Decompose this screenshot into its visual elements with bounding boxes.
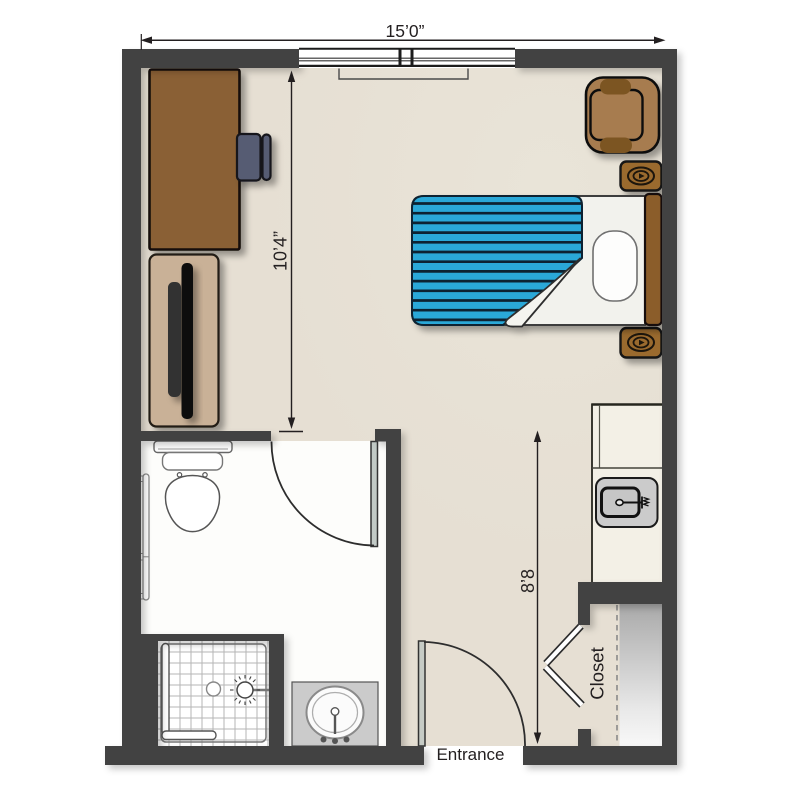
svg-text:8’8: 8’8 xyxy=(518,569,538,593)
svg-text:15’0”: 15’0” xyxy=(386,21,425,41)
svg-text:10’4”: 10’4” xyxy=(271,231,291,271)
svg-text:Closet: Closet xyxy=(587,647,608,699)
svg-text:Entrance: Entrance xyxy=(436,745,504,764)
